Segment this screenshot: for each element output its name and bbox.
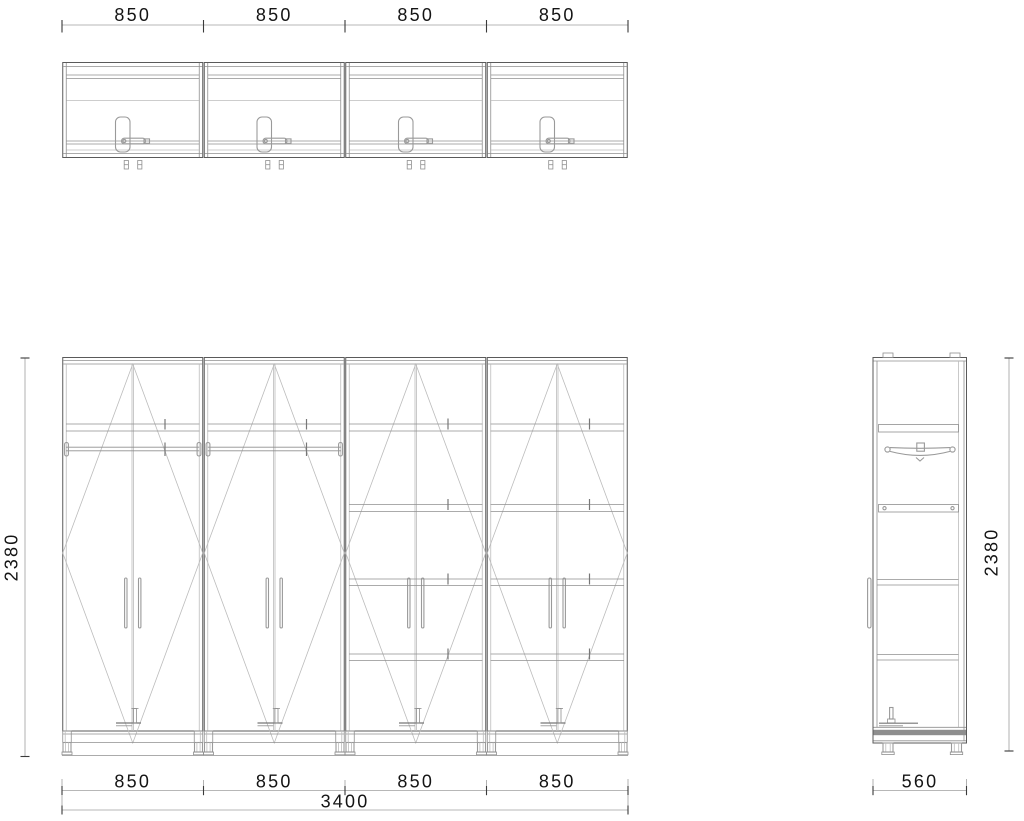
dim-side-depth: 560 xyxy=(902,772,939,792)
dim-plan-850-4: 850 xyxy=(539,5,576,25)
dim-plan-850-2: 850 xyxy=(256,5,293,25)
dim-front-850-4: 850 xyxy=(539,772,576,792)
dim-plan-850-1: 850 xyxy=(114,5,151,25)
wardrobe-technical-drawing: 850 850 850 850 2380 xyxy=(0,0,1024,821)
dim-front-850-3: 850 xyxy=(397,772,434,792)
dim-front-height: 2380 xyxy=(2,533,22,582)
dim-plan-850-3: 850 xyxy=(397,5,434,25)
dim-front-850-2: 850 xyxy=(256,772,293,792)
dim-side-height: 2380 xyxy=(982,528,1002,577)
dim-front-850-1: 850 xyxy=(114,772,151,792)
paper-background xyxy=(0,0,1024,821)
dim-front-total-width: 3400 xyxy=(321,792,370,812)
